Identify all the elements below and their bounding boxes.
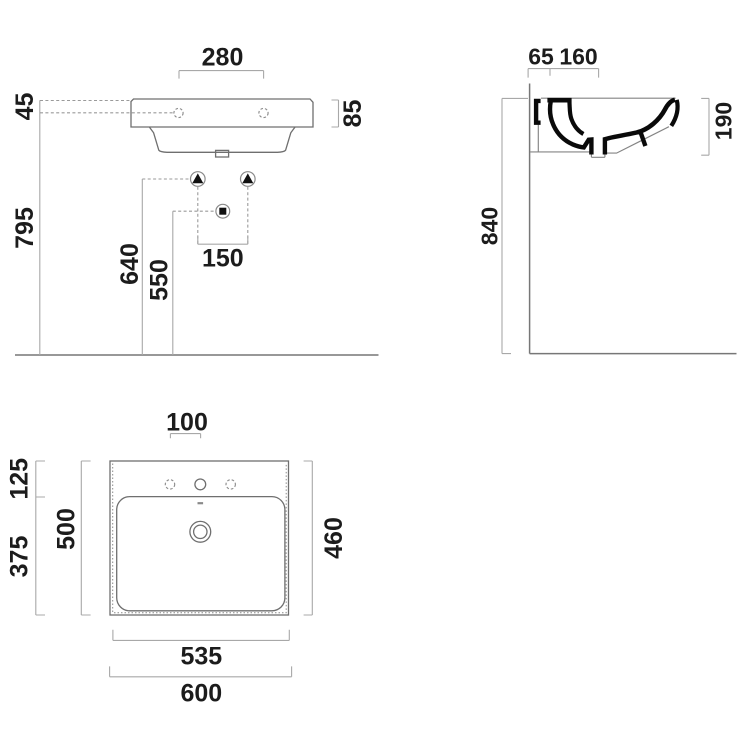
plan-tap-hole-right [226, 480, 235, 489]
dim-label-535: 535 [180, 643, 222, 671]
front-fixing-hole-right [259, 108, 268, 117]
plan-view: 100 125 375 500 460 535 600 [6, 409, 349, 708]
section-apron-foot [641, 133, 646, 146]
section-drain-right-floor [605, 132, 640, 155]
section-front-rim-edge [671, 100, 677, 126]
dim-label-150: 150 [202, 245, 244, 273]
dim-label-160: 160 [559, 44, 597, 70]
drain-symbol-square-icon [219, 208, 226, 215]
section-front-wall [637, 100, 675, 133]
front-rim-outline [131, 99, 313, 127]
dim-label-85: 85 [339, 100, 367, 128]
dim-line-840 [502, 98, 528, 353]
dim-line-85 [332, 100, 339, 127]
dim-label-600: 600 [180, 680, 222, 708]
dim-label-45: 45 [11, 93, 39, 121]
dim-label-280: 280 [202, 44, 244, 72]
section-inner-rear-wall [569, 102, 583, 135]
dim-label-375: 375 [6, 536, 34, 578]
dim-label-795: 795 [11, 207, 39, 249]
dim-line-460 [304, 461, 313, 615]
dim-line-535 [113, 630, 289, 641]
dim-line-150 [198, 236, 248, 244]
plan-tap-hole-center [195, 479, 206, 490]
dim-label-125: 125 [6, 458, 34, 500]
front-view: 45 795 280 85 150 640 550 [11, 44, 379, 356]
section-rear-ledge [536, 101, 541, 123]
side-view: 65 160 840 190 [477, 44, 737, 354]
dim-label-640: 640 [116, 243, 144, 285]
dim-label-550: 550 [146, 259, 174, 301]
dim-line-125-375 [36, 461, 45, 615]
front-drain-stub [216, 150, 229, 157]
plan-tap-hole-left [165, 480, 174, 489]
dim-line-500 [81, 461, 90, 615]
front-fixing-hole-left [174, 108, 183, 117]
dim-line-190 [701, 98, 709, 155]
plan-bowl-outline [117, 497, 285, 611]
dim-line-65-160 [528, 69, 599, 78]
drawing-canvas: 45 795 280 85 150 640 550 [0, 0, 750, 750]
dim-label-500: 500 [53, 508, 81, 550]
dim-label-100: 100 [166, 409, 208, 437]
technical-drawing: 45 795 280 85 150 640 550 [0, 0, 750, 750]
dim-label-190: 190 [711, 102, 737, 140]
front-bowl-outline [150, 127, 295, 152]
plan-drain-inner [194, 525, 207, 538]
dim-label-65: 65 [528, 44, 554, 70]
dim-line-280 [179, 71, 264, 79]
dim-label-460: 460 [320, 517, 348, 559]
dim-label-840: 840 [477, 207, 503, 245]
